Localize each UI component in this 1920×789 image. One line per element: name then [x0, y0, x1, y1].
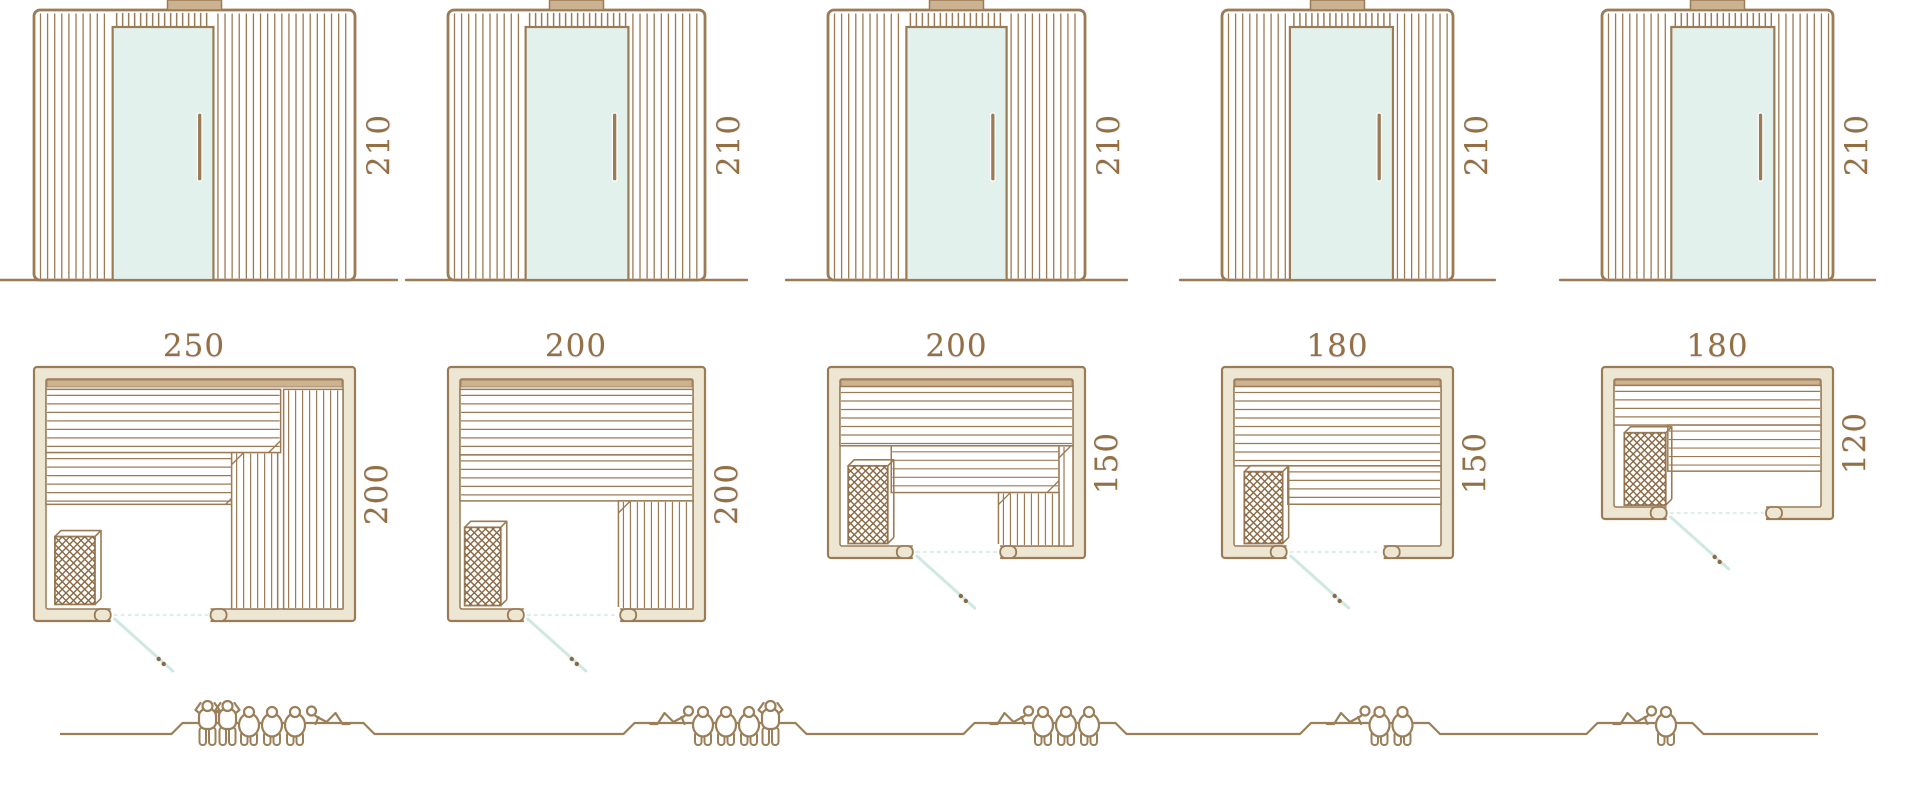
roof-cap [930, 0, 984, 10]
bench [1614, 385, 1821, 425]
backrest-strip [461, 380, 692, 387]
door-jamb [1651, 507, 1667, 519]
door-handle-mark [1337, 599, 1341, 603]
capacity-group [1327, 707, 1413, 746]
plan-width-label: 250 [134, 329, 254, 363]
floor-plan-drawing [816, 355, 1097, 658]
door-jamb [1271, 546, 1287, 558]
elevation-drawing [778, 0, 1135, 300]
door-handle [1758, 113, 1763, 181]
bench [618, 501, 693, 609]
roof-cap [1311, 0, 1365, 10]
elevation-drawing [398, 0, 755, 300]
door-handle-mark [1717, 560, 1721, 564]
door-handle-mark [1332, 594, 1336, 598]
door-jamb [508, 609, 524, 621]
door-jamb [95, 609, 111, 621]
person-lying [1327, 707, 1370, 725]
bench [46, 389, 281, 452]
person-sitting [1656, 707, 1676, 745]
person-sitting [739, 707, 759, 745]
bench [1059, 446, 1073, 546]
door-handle-mark [162, 662, 166, 666]
capacity-group [1614, 707, 1677, 746]
plan-depth-label: 120 [1838, 383, 1872, 503]
elevation-height-label: 210 [1092, 85, 1126, 205]
bench [1288, 466, 1441, 504]
floor-plan-drawing [436, 355, 717, 721]
elevation-drawing [0, 0, 405, 300]
elevation-height-label: 210 [1460, 85, 1494, 205]
capacity-group [991, 707, 1100, 746]
roof-cap [168, 0, 222, 10]
person-sitting [1079, 707, 1099, 745]
plan-depth-label: 150 [1090, 403, 1124, 523]
plan-width-label: 180 [1658, 329, 1778, 363]
door-handle-mark [157, 657, 161, 661]
plan-width-label: 200 [897, 329, 1017, 363]
bench [460, 455, 693, 501]
door-handle-mark [575, 662, 579, 666]
elevation-height-label: 210 [712, 85, 746, 205]
bench [460, 389, 693, 455]
person-lying [991, 707, 1034, 725]
plan-width-label: 180 [1278, 329, 1398, 363]
person-sitting [1033, 707, 1053, 745]
bench [998, 493, 1059, 546]
backrest-strip [47, 380, 342, 387]
bench [1234, 387, 1441, 466]
bench [232, 453, 278, 609]
plan-depth-label: 200 [360, 434, 394, 554]
roof-cap [1691, 0, 1745, 10]
plan-depth-label: 150 [1458, 403, 1492, 523]
door-handle-mark [964, 599, 968, 603]
door-jamb [1384, 546, 1400, 558]
floor-plan-drawing [22, 355, 367, 721]
door-handle [612, 113, 617, 181]
plan-width-label: 200 [516, 329, 636, 363]
door-handle [1377, 113, 1382, 181]
plan-depth-label: 200 [710, 434, 744, 554]
bench [891, 446, 1059, 493]
door-jamb [1000, 546, 1016, 558]
elevation-drawing [1552, 0, 1883, 300]
person-standing [759, 701, 783, 745]
elevation-height-label: 210 [1840, 85, 1874, 205]
roof-cap [550, 0, 604, 10]
door-handle [991, 113, 996, 181]
door-handle [197, 113, 202, 181]
bench [840, 387, 1073, 446]
door-handle-mark [570, 657, 574, 661]
door-jamb [620, 609, 636, 621]
person-lying [1614, 707, 1657, 725]
floor-plan-drawing [1590, 355, 1845, 619]
door-jamb [211, 609, 227, 621]
person-sitting [1393, 707, 1413, 745]
person-sitting [1056, 707, 1076, 745]
elevation-drawing [1172, 0, 1503, 300]
bench [46, 453, 238, 505]
door-jamb [1766, 507, 1782, 519]
person-sitting [1370, 707, 1390, 745]
floor-plan-drawing [1210, 355, 1465, 658]
person-sitting [716, 707, 736, 745]
ground-baseline [60, 723, 1818, 734]
elevation-height-label: 210 [362, 85, 396, 205]
door-handle-mark [959, 594, 963, 598]
sauna-size-diagram: 2102502002102002002102001502101801502101… [0, 0, 1920, 789]
door-jamb [897, 546, 913, 558]
door-handle-mark [1712, 555, 1716, 559]
bench [284, 389, 343, 609]
bench [1668, 425, 1821, 471]
